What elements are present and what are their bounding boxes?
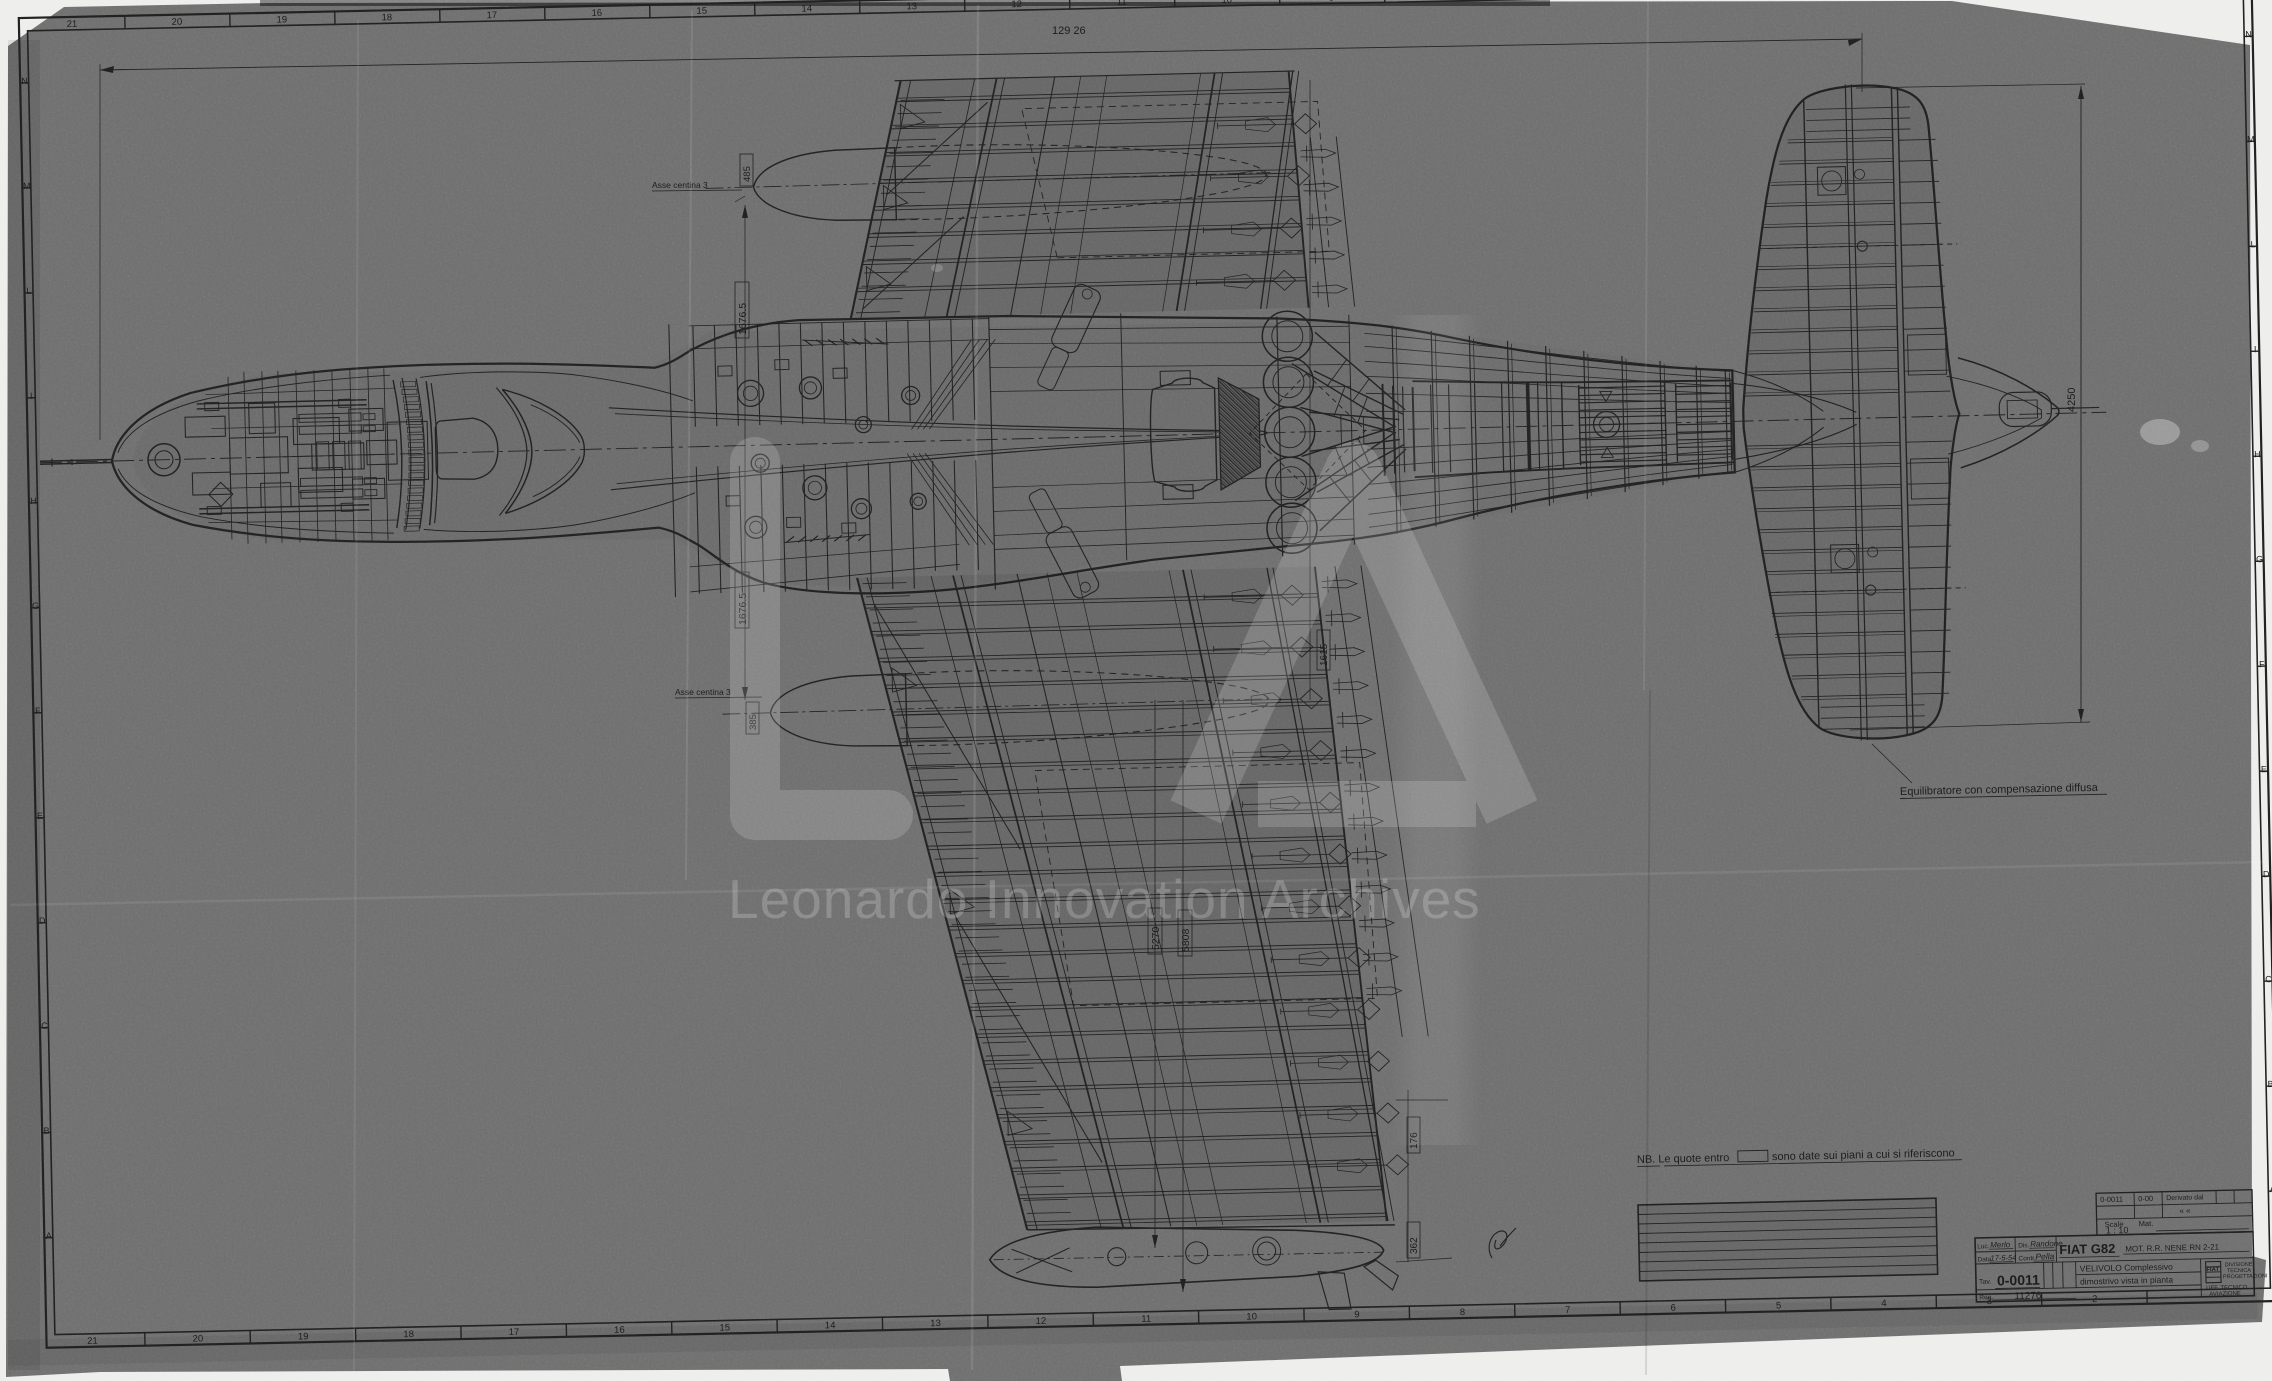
svg-text:17-5-54: 17-5-54: [1990, 1253, 2016, 1263]
svg-text:8: 8: [1460, 1307, 1466, 1318]
svg-text:485: 485: [742, 166, 753, 182]
svg-text:G: G: [32, 601, 39, 611]
svg-text:13: 13: [906, 1, 917, 12]
svg-text:L: L: [2250, 239, 2255, 249]
svg-text:FIAT G82: FIAT G82: [2059, 1241, 2115, 1257]
svg-text:Dis.: Dis.: [2018, 1242, 2030, 1249]
svg-text:0-0011: 0-0011: [1997, 1272, 2040, 1289]
svg-text:16: 16: [591, 8, 602, 19]
svg-text:4: 4: [1881, 1298, 1887, 1309]
svg-text:12: 12: [1036, 1316, 1047, 1327]
svg-text:I: I: [30, 391, 33, 401]
svg-text:H: H: [2254, 449, 2261, 459]
svg-text:5: 5: [1776, 1300, 1782, 1311]
svg-text:15: 15: [719, 1322, 730, 1333]
svg-text:D: D: [2263, 869, 2270, 879]
svg-text:1 : 10: 1 : 10: [2106, 1225, 2129, 1236]
svg-text:N: N: [21, 76, 28, 86]
svg-text:4250: 4250: [2066, 388, 2078, 412]
svg-text:11: 11: [1117, 0, 1127, 8]
svg-text:6: 6: [1670, 1303, 1676, 1314]
svg-text:Asse centina 3: Asse centina 3: [652, 180, 708, 190]
svg-text:0-0011: 0-0011: [2100, 1195, 2123, 1205]
svg-text:17: 17: [486, 10, 497, 21]
svg-text:E: E: [37, 811, 43, 821]
svg-text:14: 14: [825, 1320, 836, 1331]
svg-text:14: 14: [801, 3, 812, 14]
svg-text:FIAT: FIAT: [2206, 1267, 2219, 1273]
svg-text:8: 8: [1434, 0, 1440, 1]
svg-text:Contr.: Contr.: [2018, 1255, 2036, 1262]
svg-text:21: 21: [87, 1336, 98, 1347]
svg-text:Merlo: Merlo: [1990, 1240, 2011, 1249]
svg-text:N: N: [2245, 29, 2252, 39]
svg-text:10: 10: [1221, 0, 1232, 6]
svg-text:20: 20: [172, 17, 183, 28]
svg-text:F: F: [2259, 659, 2265, 669]
svg-text:18: 18: [381, 12, 392, 23]
svg-text:VELIVOLO Complessivo: VELIVOLO Complessivo: [2080, 1262, 2174, 1274]
svg-text:B: B: [43, 1126, 49, 1136]
svg-text:0-00: 0-00: [2138, 1194, 2153, 1203]
svg-text:Tav.: Tav.: [1979, 1279, 1992, 1286]
svg-text:B: B: [2267, 1079, 2272, 1089]
svg-text:10: 10: [1246, 1311, 1257, 1322]
svg-text:129 26: 129 26: [1052, 25, 1086, 37]
svg-text:13: 13: [930, 1318, 941, 1329]
svg-text:Luc.: Luc.: [1977, 1243, 1990, 1250]
svg-text:« «: « «: [2179, 1206, 2191, 1215]
svg-text:M: M: [23, 181, 31, 191]
svg-text:L: L: [26, 286, 31, 296]
svg-text:15: 15: [696, 6, 707, 17]
svg-text:9: 9: [1354, 1309, 1360, 1320]
svg-text:Leonardo Innovation Archives: Leonardo Innovation Archives: [728, 868, 1481, 930]
svg-text:16: 16: [614, 1325, 625, 1336]
svg-text:362: 362: [1409, 1237, 1420, 1254]
svg-text:1676.5: 1676.5: [737, 303, 749, 335]
svg-text:9: 9: [1329, 0, 1335, 4]
svg-text:Pella: Pella: [2035, 1251, 2054, 1261]
svg-text:19: 19: [298, 1331, 309, 1342]
svg-text:A: A: [46, 1231, 52, 1241]
svg-text:Derivato dal: Derivato dal: [2166, 1194, 2204, 1202]
svg-text:PROGETTAZIONI: PROGETTAZIONI: [2223, 1273, 2268, 1280]
svg-text:E: E: [2261, 764, 2267, 774]
svg-text:1615: 1615: [1319, 643, 1330, 666]
svg-text:NB. Le quote entro: NB. Le quote entro: [1637, 1152, 1730, 1166]
svg-text:Mat.: Mat.: [2139, 1219, 2154, 1228]
svg-text:18: 18: [403, 1329, 414, 1340]
svg-text:dimostrivo vista in pianta: dimostrivo vista in pianta: [2080, 1275, 2174, 1287]
svg-text:F: F: [35, 706, 41, 716]
svg-text:11276: 11276: [2014, 1291, 2042, 1303]
svg-text:Reg.: Reg.: [1979, 1294, 1993, 1301]
svg-text:G: G: [2256, 554, 2263, 564]
svg-text:I: I: [2254, 344, 2257, 354]
svg-text:Asse centina 3: Asse centina 3: [675, 687, 731, 697]
svg-text:C: C: [41, 1021, 48, 1031]
svg-text:H: H: [30, 496, 37, 506]
svg-text:12: 12: [1011, 0, 1022, 10]
svg-text:5270: 5270: [1150, 926, 1162, 950]
svg-text:C: C: [2265, 974, 2272, 984]
svg-text:11: 11: [1141, 1314, 1151, 1325]
svg-text:20: 20: [192, 1333, 203, 1344]
svg-text:5808: 5808: [1180, 928, 1192, 952]
svg-text:M: M: [2247, 134, 2255, 144]
svg-text:17: 17: [509, 1327, 520, 1338]
svg-text:21: 21: [67, 19, 78, 30]
svg-text:7: 7: [1565, 1305, 1571, 1316]
svg-text:AVIAZIONE: AVIAZIONE: [2209, 1291, 2241, 1298]
svg-text:D: D: [39, 916, 46, 926]
svg-text:19: 19: [276, 14, 287, 25]
